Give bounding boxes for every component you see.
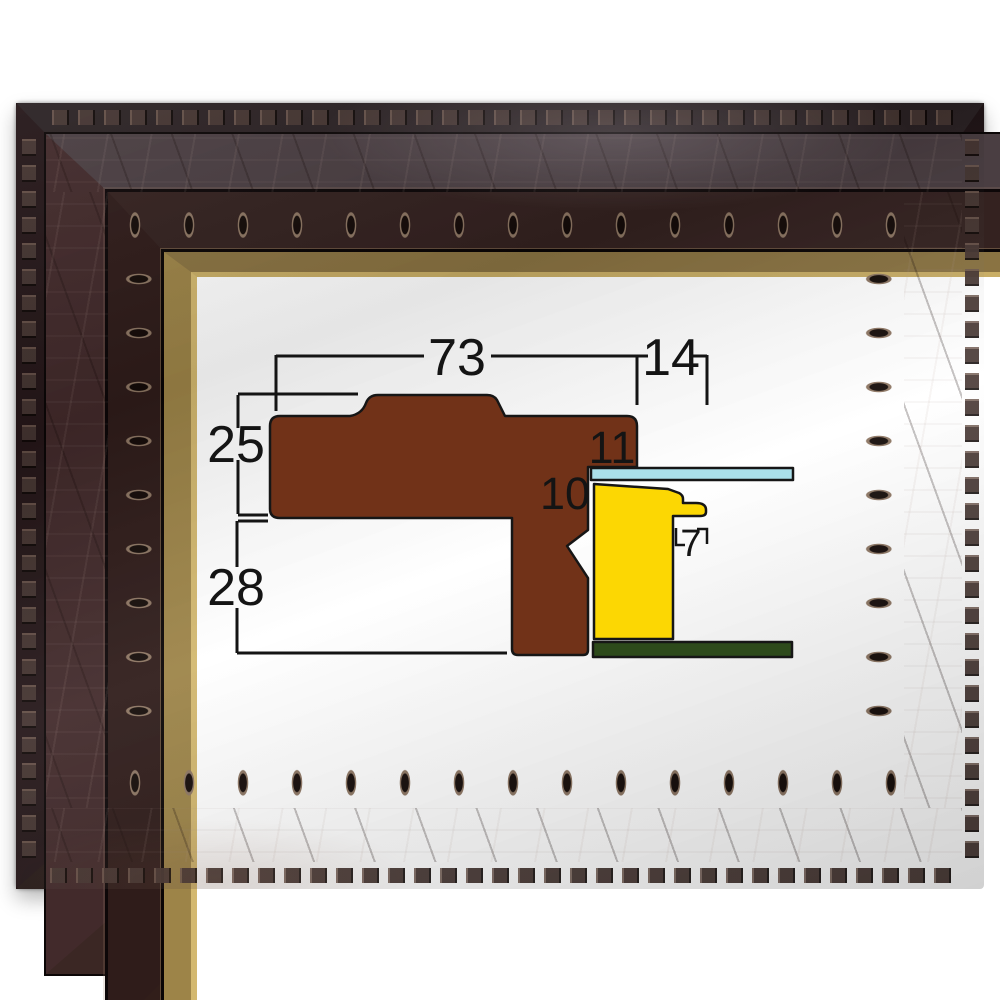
dim-label-73: 73 — [428, 329, 486, 387]
dim-label-25: 25 — [207, 416, 265, 474]
backing-bar — [593, 642, 792, 657]
dim-label-7: 7 — [680, 523, 701, 565]
dim-label-11: 11 — [589, 422, 636, 473]
moulding-cross-section-shape — [270, 395, 637, 655]
dim-label-28: 28 — [207, 559, 265, 617]
profile-diagram: 73 14 25 28 11 10 7 — [0, 0, 1000, 1000]
dim-label-10: 10 — [540, 468, 590, 519]
product-photo: 73 14 25 28 11 10 7 — [0, 0, 1000, 1000]
dim-label-14: 14 — [642, 329, 700, 387]
